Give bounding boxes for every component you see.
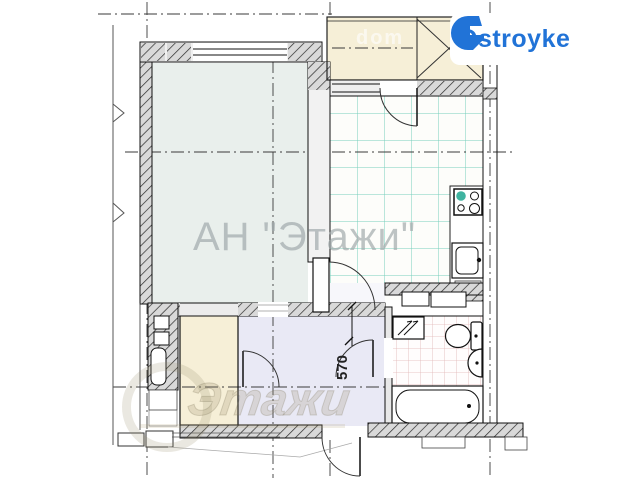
door-leaf [313,258,329,312]
vent-duct [431,292,466,307]
adjacent-boundary [113,25,124,445]
entrance-door [322,437,360,476]
watermark-dom: dom [356,27,404,50]
watermark-agency: АН "Этажи" [193,215,463,260]
stove [454,189,482,215]
door-swing-arc [322,437,360,476]
living-room-floor [152,63,308,303]
floor-plan-screenshot: 570 dom АН "Этажи" Этажи Ostroyke [0,0,640,480]
washing-machine [393,317,424,339]
toilet [446,322,483,350]
ostroyke-logo-icon [450,13,488,55]
vent-duct [402,292,429,306]
ostroyke-logo[interactable]: Ostroyke [450,13,640,65]
mid-wall [148,302,385,317]
vent-box [154,316,169,329]
vent-block [385,283,483,307]
watermark-etazhi: Этажи [184,372,353,426]
doorway-opening [258,302,288,317]
logo-glyph [451,16,484,50]
vent-box [154,332,169,345]
bathtub [392,386,483,427]
doorway-opening [384,338,393,378]
